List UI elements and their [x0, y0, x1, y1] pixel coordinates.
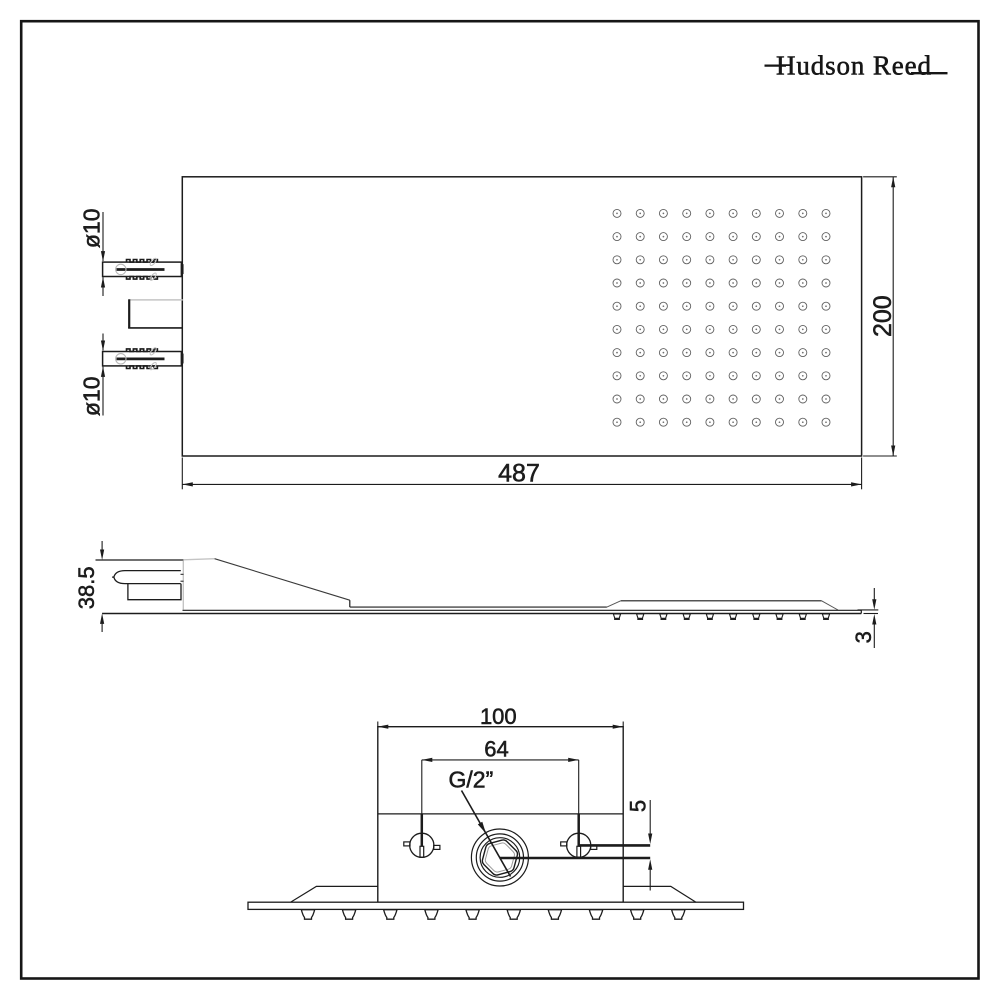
- svg-text:64: 64: [484, 736, 508, 761]
- svg-text:487: 487: [498, 459, 540, 487]
- svg-text:100: 100: [480, 704, 517, 729]
- svg-text:3: 3: [851, 631, 876, 643]
- svg-text:5: 5: [625, 800, 650, 812]
- svg-text:G/2”: G/2”: [449, 767, 494, 793]
- svg-text:Hudson Reed: Hudson Reed: [776, 50, 932, 80]
- svg-text:200: 200: [869, 295, 897, 337]
- svg-text:ø10: ø10: [78, 208, 104, 248]
- svg-text:38.5: 38.5: [74, 566, 99, 609]
- svg-text:ø10: ø10: [78, 376, 104, 416]
